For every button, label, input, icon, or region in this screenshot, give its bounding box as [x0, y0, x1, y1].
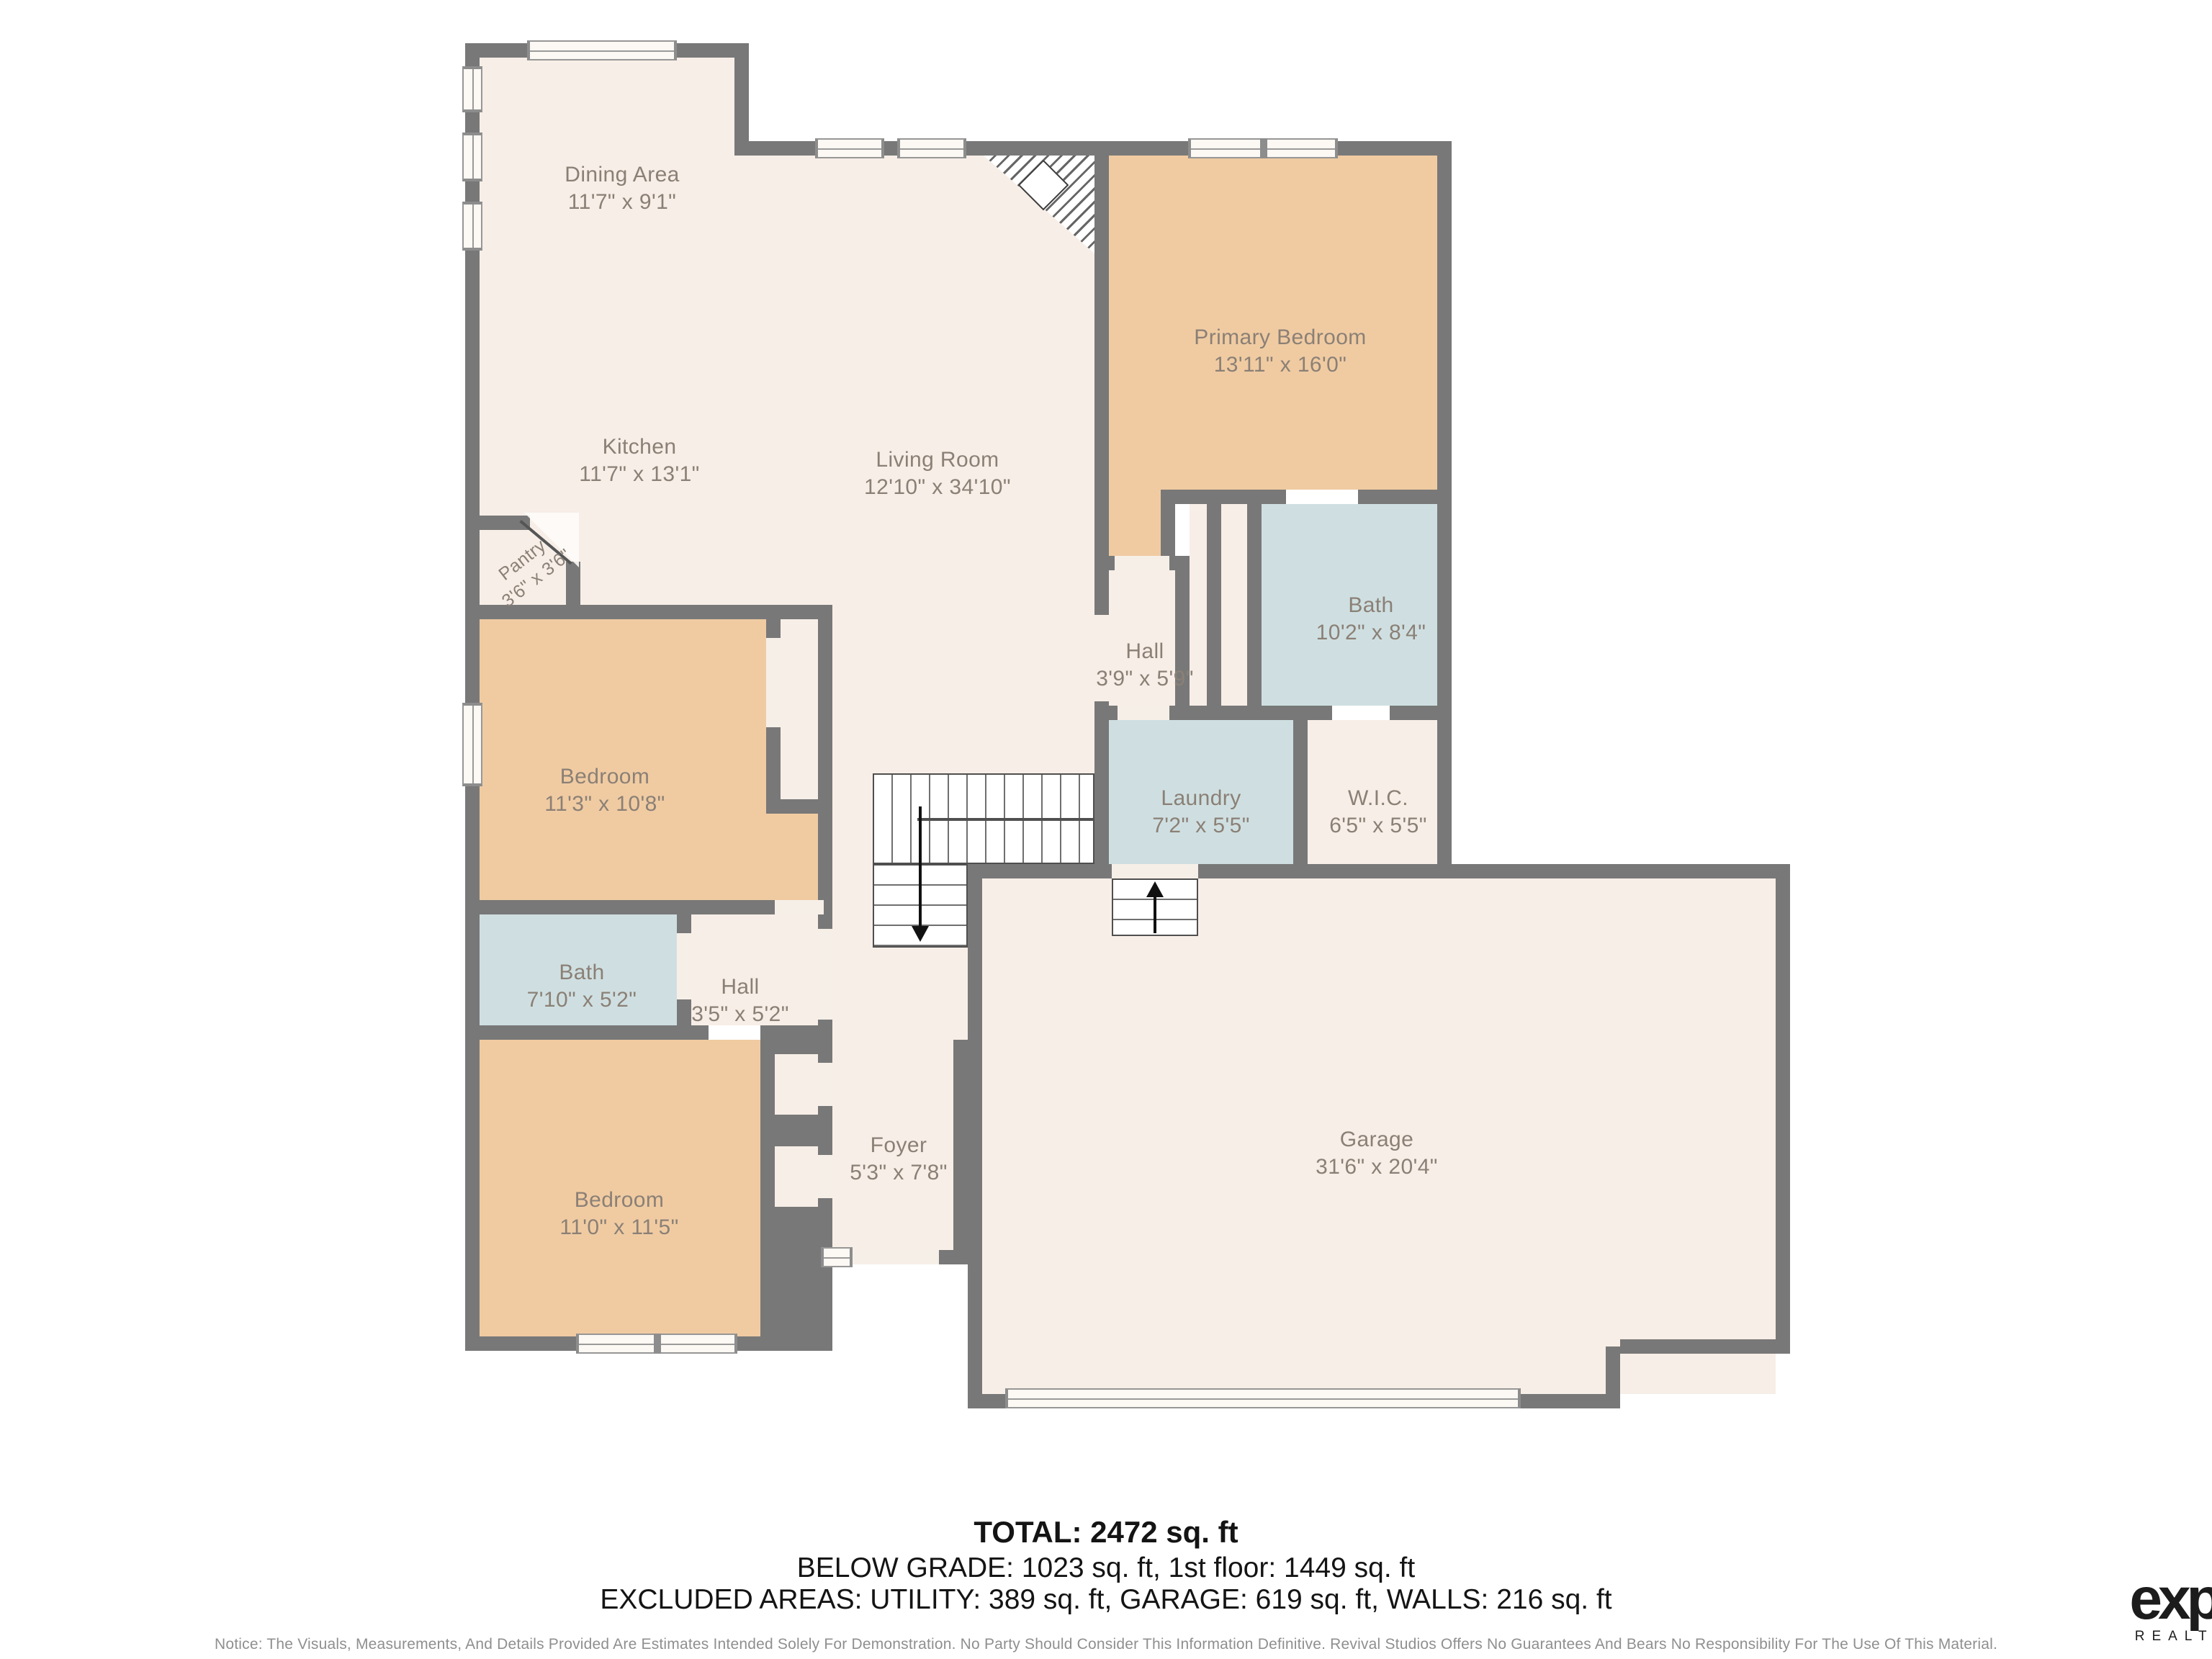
stairs-down-arrow — [919, 806, 921, 929]
wall-bath-lower-right-a — [677, 914, 691, 933]
floor-primary-bedroom — [1109, 156, 1437, 490]
door-gap-garage-entry — [1112, 864, 1198, 878]
door-gap-primary-to-bath — [1286, 490, 1358, 504]
door-gap-bedroom-upper — [775, 900, 824, 914]
room-label-kitchen: Kitchen11'7" x 13'1" — [495, 435, 783, 489]
door-gap-hall-to-laundry — [1118, 706, 1169, 720]
exp-logo-subtitle: REALTY — [2113, 1629, 2212, 1645]
excluded-area-text: EXCLUDED AREAS: UTILITY: 389 sq. ft, GAR… — [0, 1584, 2212, 1617]
grade-area-text: BELOW GRADE: 1023 sq. ft, 1st floor: 144… — [0, 1552, 2212, 1586]
wall-garage-jog — [1606, 1346, 1620, 1408]
door-gap-hall-to-primary — [1115, 556, 1169, 570]
floor-living-stair-strip — [832, 773, 873, 948]
total-area-text: TOTAL: 2472 sq. ft — [0, 1516, 2212, 1551]
stairs-down-arrow-head — [912, 926, 929, 942]
wall-foyer-left-a — [818, 1040, 832, 1063]
wall-bed-upper-closet-left-b — [766, 727, 781, 799]
wall-foyer-left-c — [818, 1198, 832, 1351]
window-bedroom-lower-mullion — [654, 1334, 661, 1354]
room-label-garage: Garage31'6" x 20'4" — [1233, 1128, 1521, 1182]
wall-primary-tab-right — [1161, 504, 1175, 556]
floor-dining-kitchen — [480, 58, 749, 619]
room-label-wic: W.I.C.6'5" x 5'5" — [1234, 786, 1522, 840]
floor-closet-a — [775, 1054, 818, 1115]
wall-garage-bottom-right — [1620, 1339, 1790, 1354]
room-label-primary-bedroom: Primary Bedroom13'11" x 16'0" — [1136, 325, 1424, 379]
wall-step — [734, 43, 749, 156]
room-label-bedroom-upper: Bedroom11'3" x 10'8" — [461, 765, 749, 819]
door-gap-closet-a — [818, 1063, 832, 1106]
window-living-top-2 — [897, 138, 966, 158]
room-label-foyer: Foyer5'3" x 7'8" — [755, 1133, 1043, 1187]
door-gap-bath-to-wic — [1332, 706, 1390, 720]
stairs-up-arrow-head — [1146, 881, 1164, 897]
room-label-dining: Dining Area11'7" x 9'1" — [478, 163, 766, 217]
floor-plan-page: Dining Area11'7" x 9'1" Kitchen11'7" x 1… — [0, 0, 2212, 1659]
wall-bed-upper-right — [818, 619, 832, 900]
window-primary-top-mullion — [1260, 138, 1267, 158]
room-label-bedroom-lower: Bedroom11'0" x 11'5" — [475, 1188, 763, 1242]
wall-outer-right-upper — [1437, 141, 1452, 878]
window-dining-left-1 — [462, 66, 482, 112]
exp-realty-logo: exp™ REALTY — [2108, 1574, 2212, 1645]
garage-door — [1005, 1388, 1521, 1408]
floor-primary-bedroom-tab — [1109, 490, 1161, 556]
room-label-hall-lower: Hall3'5" x 5'2" — [596, 975, 884, 1029]
wall-garage-top — [968, 864, 1790, 878]
window-dining-top — [527, 40, 677, 60]
wall-kitchen-bedroom-divider — [465, 605, 832, 619]
wall-closet-col-a — [775, 1040, 818, 1054]
wall-living-primary-divider — [1094, 156, 1109, 615]
disclaimer-notice: Notice: The Visuals, Measurements, And D… — [0, 1636, 2212, 1653]
room-label-living: Living Room12'10" x 34'10" — [793, 448, 1082, 502]
wall-pantry-right — [566, 562, 580, 619]
window-living-top-1 — [815, 138, 884, 158]
wall-closet-col-c — [775, 1207, 818, 1351]
door-gap-bedroom-upper-closet — [766, 638, 781, 727]
window-entry-sidelight — [821, 1247, 853, 1267]
floor-bedroom-upper-closet — [781, 619, 818, 799]
wall-garage-right — [1776, 864, 1790, 1354]
room-label-hall-upper: Hall3'9" x 5'9" — [1001, 639, 1289, 693]
floor-bedroom-upper-tab — [766, 814, 818, 900]
exp-logo-wordmark: exp™ — [2108, 1574, 2212, 1624]
wall-bed-upper-closet-left-a — [766, 619, 781, 638]
door-gap-entry — [853, 1250, 939, 1264]
floor-bedroom-upper — [480, 619, 766, 900]
